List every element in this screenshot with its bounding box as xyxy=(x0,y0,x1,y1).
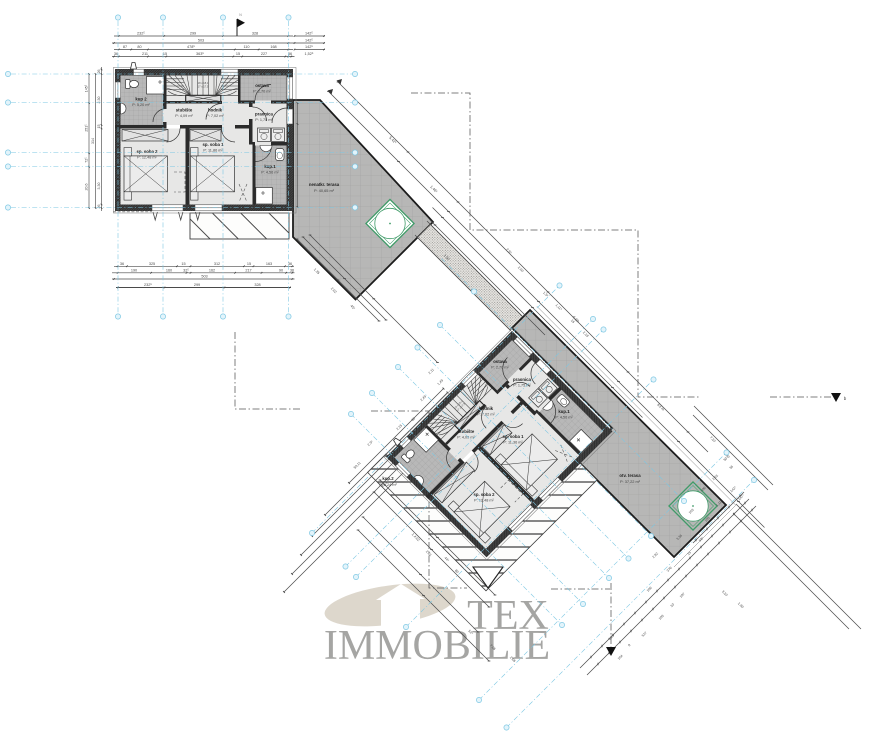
svg-text:217: 217 xyxy=(245,268,251,272)
svg-text:kup.2: kup.2 xyxy=(382,476,394,481)
svg-text:kup.1: kup.1 xyxy=(558,409,570,414)
svg-text:142⁵: 142⁵ xyxy=(305,39,313,43)
svg-text:stubište: stubište xyxy=(458,429,475,434)
svg-text:praonica: praonica xyxy=(255,112,274,117)
svg-text:sp. soba 1: sp. soba 1 xyxy=(502,434,524,439)
svg-text:P: 12,48 m²: P: 12,48 m² xyxy=(474,499,494,503)
svg-text:P: 12,48 m²: P: 12,48 m² xyxy=(137,156,157,160)
svg-text:kup 2: kup 2 xyxy=(135,97,147,102)
svg-text:P: 37,22 m²: P: 37,22 m² xyxy=(620,479,641,484)
svg-text:162: 162 xyxy=(209,268,215,272)
svg-text:325: 325 xyxy=(149,262,155,266)
svg-text:142⁵: 142⁵ xyxy=(305,45,313,49)
svg-text:314: 314 xyxy=(91,138,95,144)
svg-text:sp. soba 2: sp. soba 2 xyxy=(473,492,495,497)
svg-text:87: 87 xyxy=(123,45,127,49)
svg-text:stubište: stubište xyxy=(176,108,193,113)
svg-text:P: 1,75 m²: P: 1,75 m² xyxy=(513,384,531,388)
svg-text:ostava: ostava xyxy=(493,359,507,364)
svg-text:503: 503 xyxy=(201,275,207,279)
svg-text:praonica: praonica xyxy=(513,377,532,382)
svg-text:26: 26 xyxy=(97,70,101,74)
svg-text:80: 80 xyxy=(137,45,141,49)
svg-text:145⁵: 145⁵ xyxy=(85,84,89,92)
svg-text:227: 227 xyxy=(261,52,267,56)
svg-text:90: 90 xyxy=(279,268,283,272)
svg-text:P: 2,70 m²: P: 2,70 m² xyxy=(491,366,509,370)
svg-text:36: 36 xyxy=(120,262,124,266)
svg-text:163: 163 xyxy=(266,262,272,266)
svg-text:251⁵: 251⁵ xyxy=(85,124,89,132)
svg-text:232⁵: 232⁵ xyxy=(137,32,145,36)
svg-text:P: 7,02 m²: P: 7,02 m² xyxy=(206,114,224,118)
svg-text:P: 11,86 m²: P: 11,86 m² xyxy=(203,149,223,153)
svg-text:15: 15 xyxy=(236,52,240,56)
svg-text:328: 328 xyxy=(252,32,258,36)
svg-text:190: 190 xyxy=(131,268,137,272)
svg-text:15: 15 xyxy=(247,262,251,266)
svg-text:328: 328 xyxy=(254,283,260,287)
svg-text:72⁵: 72⁵ xyxy=(85,157,89,163)
svg-text:110: 110 xyxy=(243,45,249,49)
svg-text:363⁵: 363⁵ xyxy=(196,52,204,56)
svg-text:15: 15 xyxy=(181,262,185,266)
svg-text:32⁵: 32⁵ xyxy=(183,268,189,272)
svg-text:299: 299 xyxy=(190,32,196,36)
svg-text:36: 36 xyxy=(114,52,118,56)
svg-text:15: 15 xyxy=(163,52,167,56)
svg-text:P: 4,56 m²: P: 4,56 m² xyxy=(261,171,279,175)
svg-text:36: 36 xyxy=(290,268,294,272)
svg-text:P: 5,20 m²: P: 5,20 m² xyxy=(132,103,150,107)
svg-text:503: 503 xyxy=(198,39,204,43)
svg-text:P: 2,70 m²: P: 2,70 m² xyxy=(253,90,271,94)
svg-text:hodnik: hodnik xyxy=(479,406,494,411)
svg-text:478⁵: 478⁵ xyxy=(187,45,195,49)
svg-text:P: 1,75 m²: P: 1,75 m² xyxy=(255,118,273,122)
svg-text:P: 4,09 m²: P: 4,09 m² xyxy=(457,436,475,440)
svg-text:20,6: 20,6 xyxy=(85,184,89,191)
svg-text:ostava: ostava xyxy=(255,83,269,88)
svg-text:P: 40,65 m²: P: 40,65 m² xyxy=(314,188,335,193)
svg-text:1,52⁵: 1,52⁵ xyxy=(305,52,314,56)
svg-text:nenatkr. terasa: nenatkr. terasa xyxy=(309,182,340,187)
svg-text:hodnik: hodnik xyxy=(208,108,223,113)
svg-text:168: 168 xyxy=(270,45,276,49)
svg-text:3,30: 3,30 xyxy=(97,183,101,190)
svg-text:26: 26 xyxy=(97,205,101,209)
svg-text:299: 299 xyxy=(194,283,200,287)
svg-text:142⁵: 142⁵ xyxy=(305,32,313,36)
svg-text:P: 6,24 m²: P: 6,24 m² xyxy=(379,483,397,487)
svg-text:P: 4,56 m²: P: 4,56 m² xyxy=(555,416,573,420)
svg-text:sp. soba 2: sp. soba 2 xyxy=(136,149,158,154)
svg-text:otv. terasa: otv. terasa xyxy=(619,473,641,478)
svg-text:232⁵: 232⁵ xyxy=(144,283,152,287)
svg-text:IMMOBILIE: IMMOBILIE xyxy=(324,623,550,669)
svg-text:sp. soba 1: sp. soba 1 xyxy=(202,142,224,147)
svg-text:P: 4,09 m²: P: 4,09 m² xyxy=(175,114,193,118)
svg-text:211: 211 xyxy=(142,52,148,56)
svg-text:P: 11,36 m²: P: 11,36 m² xyxy=(503,441,523,445)
svg-text:312: 312 xyxy=(214,262,220,266)
svg-text:160: 160 xyxy=(166,268,172,272)
svg-text:15: 15 xyxy=(97,125,101,129)
